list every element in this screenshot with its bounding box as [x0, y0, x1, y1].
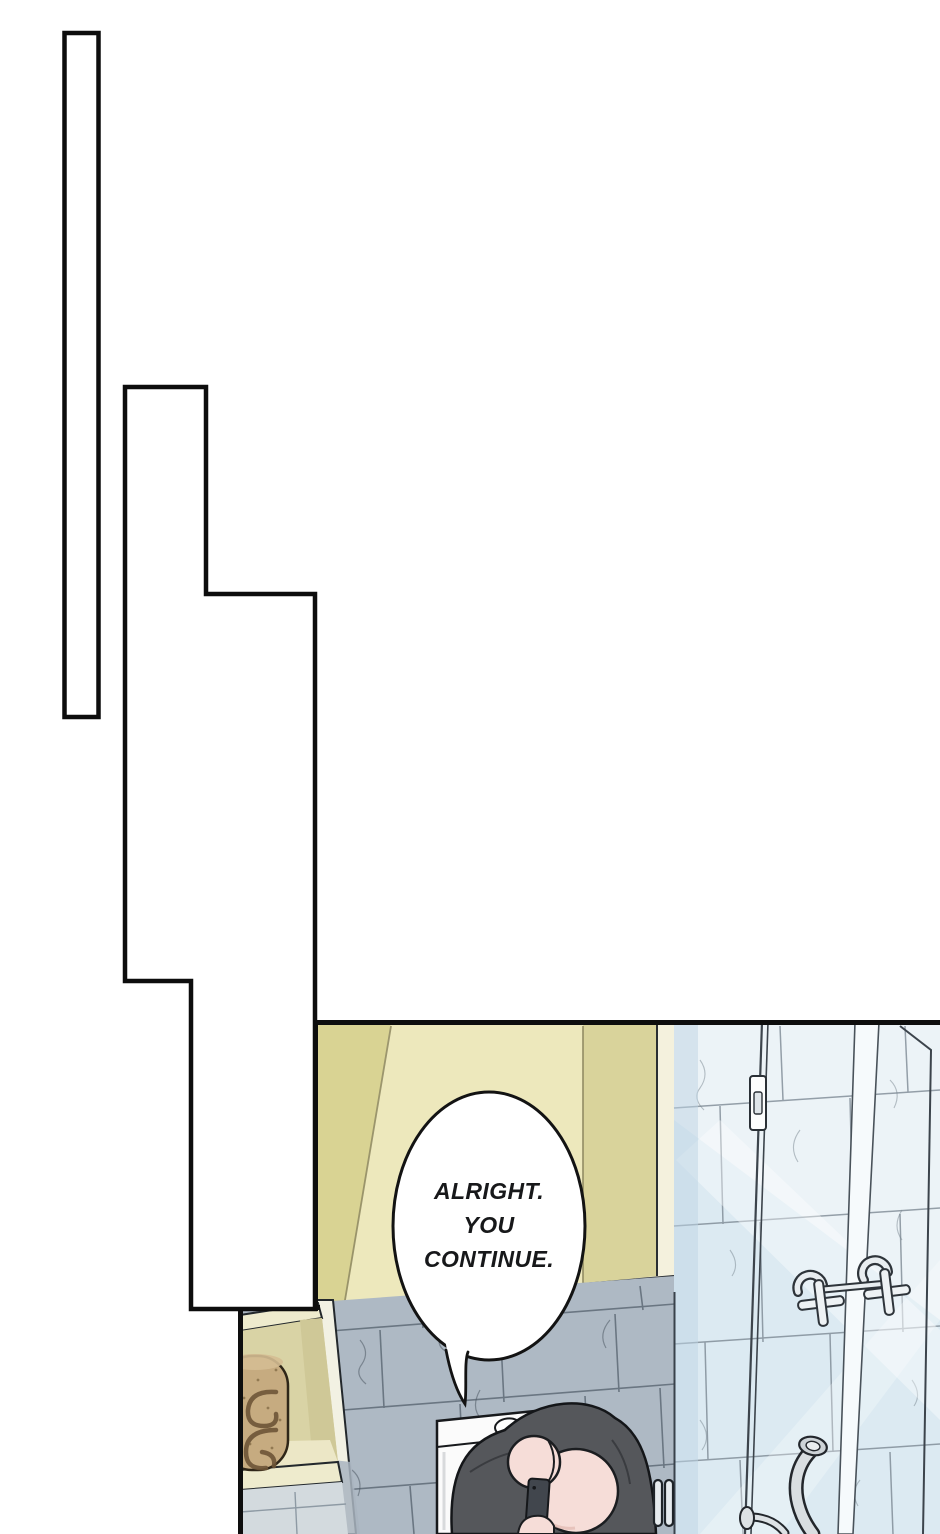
stepped-empty-panel — [125, 387, 315, 1309]
empty-panel — [65, 33, 99, 717]
towel-roll — [222, 1354, 288, 1470]
comic-page: ALRIGHT. YOU CONTINUE. — [0, 0, 940, 1534]
glass-hinge-icon — [750, 1076, 766, 1130]
bathroom-panel — [222, 1022, 940, 1534]
comic-art — [0, 0, 940, 1534]
